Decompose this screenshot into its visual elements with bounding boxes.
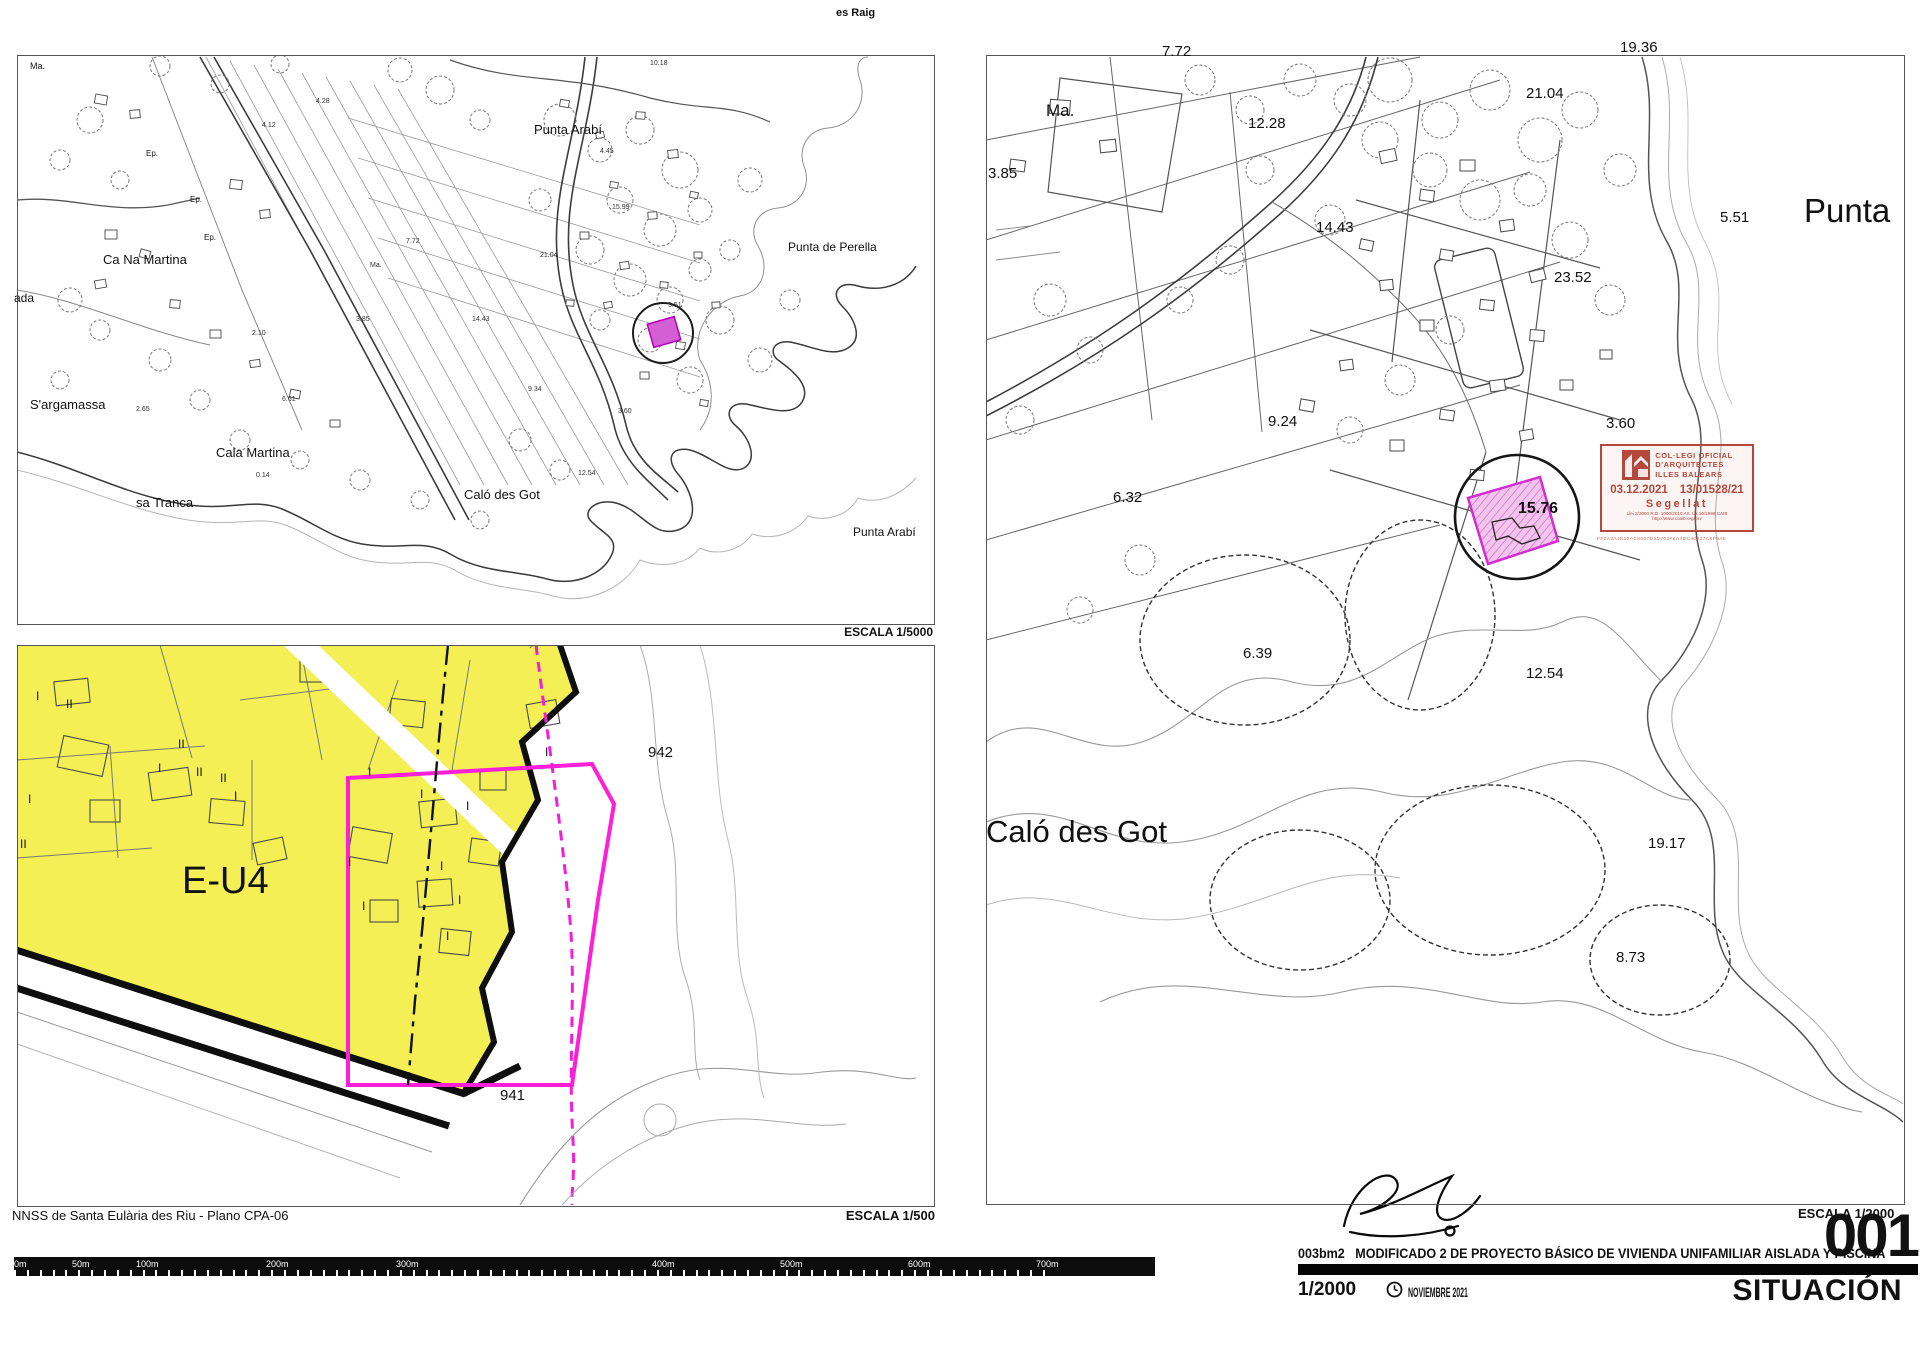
place-name-label: Punta de Perella — [788, 241, 877, 253]
scale-tick — [464, 1270, 466, 1276]
scale-tick — [438, 1270, 440, 1276]
graphic-scale-bar — [14, 1257, 1155, 1276]
spot-height-label: 2.65 — [136, 406, 150, 413]
scale-tick — [734, 1270, 736, 1276]
scale-tick — [644, 1270, 646, 1276]
storey-mark-label: II — [196, 766, 203, 778]
scale-tick — [953, 1270, 955, 1276]
place-name-label: Caló des Got — [464, 488, 540, 501]
coaib-logo-icon — [1621, 449, 1651, 481]
place-name-label: ada — [14, 292, 34, 304]
scale-tick — [670, 1270, 672, 1276]
scale-tick — [824, 1270, 826, 1276]
place-name-label: Cala Martina — [216, 446, 290, 459]
storey-mark-label: II — [66, 698, 73, 710]
scale-tick — [413, 1270, 415, 1276]
storey-mark-label: II — [20, 838, 27, 850]
spot-height-label: 8.73 — [1616, 950, 1645, 965]
scale-tick — [374, 1270, 376, 1276]
stamp-url: http://www.coaib.org/csv — [1652, 516, 1702, 521]
place-name-label: Ep. — [190, 196, 202, 204]
spot-height-label: 4.45 — [600, 148, 614, 155]
parcel-number-label: 942 — [648, 745, 673, 760]
place-name-label: Caló des Got — [986, 816, 1167, 847]
storey-mark-label: II — [178, 738, 185, 750]
scale-tick — [914, 1270, 916, 1276]
scale-tick — [233, 1270, 235, 1276]
map500-frame — [17, 645, 935, 1207]
scale-tick — [631, 1270, 633, 1276]
stamp-org-line2: D'ARQUITECTES — [1655, 460, 1733, 469]
scale-tick — [65, 1270, 67, 1276]
scale-tick — [798, 1270, 800, 1276]
storey-mark-label: I — [368, 766, 371, 778]
scale-tick — [708, 1270, 710, 1276]
zone-code-label: E-U4 — [182, 862, 269, 900]
scale-tick — [979, 1270, 981, 1276]
scale-tick — [837, 1270, 839, 1276]
storey-mark-label: I — [28, 793, 31, 805]
scale-tick — [361, 1270, 363, 1276]
scale-tick — [863, 1270, 865, 1276]
map2000-frame — [986, 55, 1905, 1205]
scale-tick — [271, 1270, 273, 1276]
scale-tick — [901, 1270, 903, 1276]
scale-tick-label: 300m — [396, 1259, 419, 1269]
scale-tick — [773, 1270, 775, 1276]
project-title-line: 003bm2 MODIFICADO 2 DE PROYECTO BÁSICO D… — [1298, 1246, 1885, 1261]
storey-mark-label: I — [458, 894, 461, 906]
scale-tick — [323, 1270, 325, 1276]
scale-tick — [104, 1270, 106, 1276]
coaib-stamp: COL·LEGI OFICIAL D'ARQUITECTES ILLES BAL… — [1600, 444, 1754, 532]
spot-height-label: 2.10 — [252, 330, 266, 337]
spot-height-label: 5.51 — [1720, 210, 1749, 225]
place-name-label: Punta Arabí — [534, 123, 602, 136]
stamp-date: 03.12.2021 — [1610, 484, 1668, 496]
stamp-status: Segellat — [1646, 498, 1708, 510]
scale-tick — [155, 1270, 157, 1276]
scale-tick — [927, 1270, 929, 1276]
scale-tick — [297, 1270, 299, 1276]
storey-mark-label: I — [348, 856, 351, 868]
scale-tick — [541, 1270, 543, 1276]
scale-tick — [811, 1270, 813, 1276]
spot-height-label: 21.04 — [1526, 86, 1564, 101]
scale-tick-label: 600m — [908, 1259, 931, 1269]
scale-tick — [606, 1270, 608, 1276]
spot-height-label: 21.04 — [540, 252, 558, 259]
scale-tick — [310, 1270, 312, 1276]
scale-tick — [657, 1270, 659, 1276]
scale-tick — [850, 1270, 852, 1276]
map5000-frame — [17, 55, 935, 625]
spot-height-label: 12.54 — [578, 470, 596, 477]
scale-tick — [991, 1270, 993, 1276]
scale-tick-label: 100m — [136, 1259, 159, 1269]
scale-tick — [554, 1270, 556, 1276]
spot-height-label: 9.24 — [1268, 414, 1297, 429]
spot-height-label: 19.17 — [1648, 836, 1686, 851]
storey-mark-label: I — [446, 930, 449, 942]
scale-tick — [14, 1270, 16, 1276]
scale-tick — [168, 1270, 170, 1276]
spot-height-label: 6.32 — [1113, 490, 1142, 505]
scale-tick — [888, 1270, 890, 1276]
escala-500-label: ESCALA 1/500 — [845, 1208, 935, 1223]
parcel-number-label: 941 — [500, 1088, 525, 1103]
scale-tick — [91, 1270, 93, 1276]
scale-tick — [528, 1270, 530, 1276]
scale-tick — [477, 1270, 479, 1276]
scale-tick — [348, 1270, 350, 1276]
storey-mark-label: I — [362, 900, 365, 912]
escala-5000-label: ESCALA 1/5000 — [838, 625, 933, 639]
scale-tick — [1004, 1270, 1006, 1276]
spot-height-label: 15.76 — [1518, 501, 1558, 517]
place-name-label: Punta Arabí — [853, 526, 916, 538]
scale-tick — [143, 1270, 145, 1276]
storey-mark-label: I — [420, 788, 423, 800]
scale-tick-label: 0m — [14, 1259, 27, 1269]
place-name-label: es Raig — [836, 8, 875, 19]
clock-icon — [1386, 1281, 1403, 1303]
scale-tick — [336, 1270, 338, 1276]
scale-tick — [194, 1270, 196, 1276]
spot-height-label: 3.60 — [618, 408, 632, 415]
sheet-number: 001 — [1802, 1206, 1918, 1266]
scale-tick-label: 700m — [1036, 1259, 1059, 1269]
place-name-label: S'argamassa — [30, 398, 105, 411]
scale-tick — [220, 1270, 222, 1276]
scale-tick — [721, 1270, 723, 1276]
nnss-source-label: NNSS de Santa Eulària des Riu - Plano CP… — [12, 1208, 289, 1223]
storey-mark-label: I — [466, 800, 469, 812]
stamp-hash-code: FF0A3A4E12AC8087D4D702F6A4DC40027C6P9A5 — [1597, 537, 1726, 542]
storey-mark-label: II — [220, 772, 227, 784]
scale-tick — [683, 1270, 685, 1276]
spot-height-label: 6.39 — [1243, 646, 1272, 661]
spot-height-label: 10.18 — [650, 60, 668, 67]
scale-tick-label: 500m — [780, 1259, 803, 1269]
scale-tick — [876, 1270, 878, 1276]
scale-tick — [426, 1270, 428, 1276]
scale-tick — [451, 1270, 453, 1276]
scale-tick — [130, 1270, 132, 1276]
scale-tick — [940, 1270, 942, 1276]
scale-tick — [1043, 1270, 1045, 1276]
scale-tick — [696, 1270, 698, 1276]
place-name-label: Ep. — [146, 150, 158, 158]
place-name-label: Punta — [1804, 194, 1890, 227]
scale-tick — [1030, 1270, 1032, 1276]
place-name-label: Ma. — [30, 62, 45, 71]
spot-height-label: 7.72 — [406, 238, 420, 245]
scale-tick — [27, 1270, 29, 1276]
spot-height-label: 23.52 — [1554, 270, 1592, 285]
sheet-title: SITUACIÓN — [1600, 1274, 1902, 1308]
scale-tick — [618, 1270, 620, 1276]
scale-tick — [40, 1270, 42, 1276]
spot-height-label: 5.51 — [668, 302, 682, 309]
spot-height-label: Ma. — [1046, 102, 1074, 119]
spot-height-label: 3.85 — [988, 166, 1017, 181]
spot-height-label: 3.85 — [356, 316, 370, 323]
scale-tick-label: 400m — [652, 1259, 675, 1269]
scale-tick — [284, 1270, 286, 1276]
scale-tick — [747, 1270, 749, 1276]
spot-height-label: 7.72 — [1162, 44, 1191, 59]
scale-tick — [567, 1270, 569, 1276]
storey-mark-label: I — [440, 860, 443, 872]
scale-tick — [593, 1270, 595, 1276]
spot-height-label: 14.43 — [1316, 220, 1354, 235]
spot-height-label: 19.36 — [1620, 40, 1658, 55]
spot-height-label: 12.28 — [1248, 116, 1286, 131]
spot-height-label: 12.54 — [1526, 666, 1564, 681]
spot-height-label: 9.34 — [528, 386, 542, 393]
storey-mark-label: I — [36, 690, 39, 702]
scale-tick — [207, 1270, 209, 1276]
scale-tick — [760, 1270, 762, 1276]
spot-height-label: 14.43 — [472, 316, 490, 323]
scale-tick-label: 200m — [266, 1259, 289, 1269]
place-name-label: Ca Na Martina — [103, 253, 187, 266]
storey-mark-label: I — [545, 746, 548, 758]
scale-tick — [387, 1270, 389, 1276]
scale-tick — [258, 1270, 260, 1276]
spot-height-label: 0.14 — [256, 472, 270, 479]
storey-mark-label: I — [234, 790, 237, 802]
spot-height-label: 4.28 — [316, 98, 330, 105]
scale-tick — [503, 1270, 505, 1276]
plan-sheet: { "page": {"background": "#ffffff", "acc… — [0, 0, 1920, 1357]
place-name-label: sa Tranca — [136, 496, 193, 509]
scale-tick — [490, 1270, 492, 1276]
scale-tick — [245, 1270, 247, 1276]
titleblock-scale-value: 1/2000 — [1298, 1279, 1356, 1301]
spot-height-label: 3.60 — [1606, 416, 1635, 431]
spot-height-label: 6.61 — [282, 396, 296, 403]
stamp-file-number: 13/01528/21 — [1680, 484, 1744, 496]
place-name-label: Ep. — [204, 234, 216, 242]
scale-tick — [117, 1270, 119, 1276]
scale-tick — [580, 1270, 582, 1276]
scale-tick — [400, 1270, 402, 1276]
project-code: 003bm2 — [1298, 1246, 1345, 1261]
spot-height-label: 4.12 — [262, 122, 276, 129]
stamp-org-line1: COL·LEGI OFICIAL — [1655, 451, 1733, 460]
scale-tick — [786, 1270, 788, 1276]
stamp-org-line3: ILLES BALEARS — [1655, 470, 1733, 479]
storey-mark-label: I — [158, 762, 161, 774]
scale-tick — [53, 1270, 55, 1276]
titleblock-date: NOVIEMBRE 2021 — [1408, 1284, 1468, 1300]
scale-tick — [516, 1270, 518, 1276]
scale-tick — [181, 1270, 183, 1276]
spot-height-label: 15.99 — [612, 204, 630, 211]
scale-tick — [78, 1270, 80, 1276]
scale-tick — [966, 1270, 968, 1276]
scale-tick — [1017, 1270, 1019, 1276]
spot-height-label: Ma. — [370, 262, 382, 269]
scale-tick-label: 50m — [72, 1259, 90, 1269]
